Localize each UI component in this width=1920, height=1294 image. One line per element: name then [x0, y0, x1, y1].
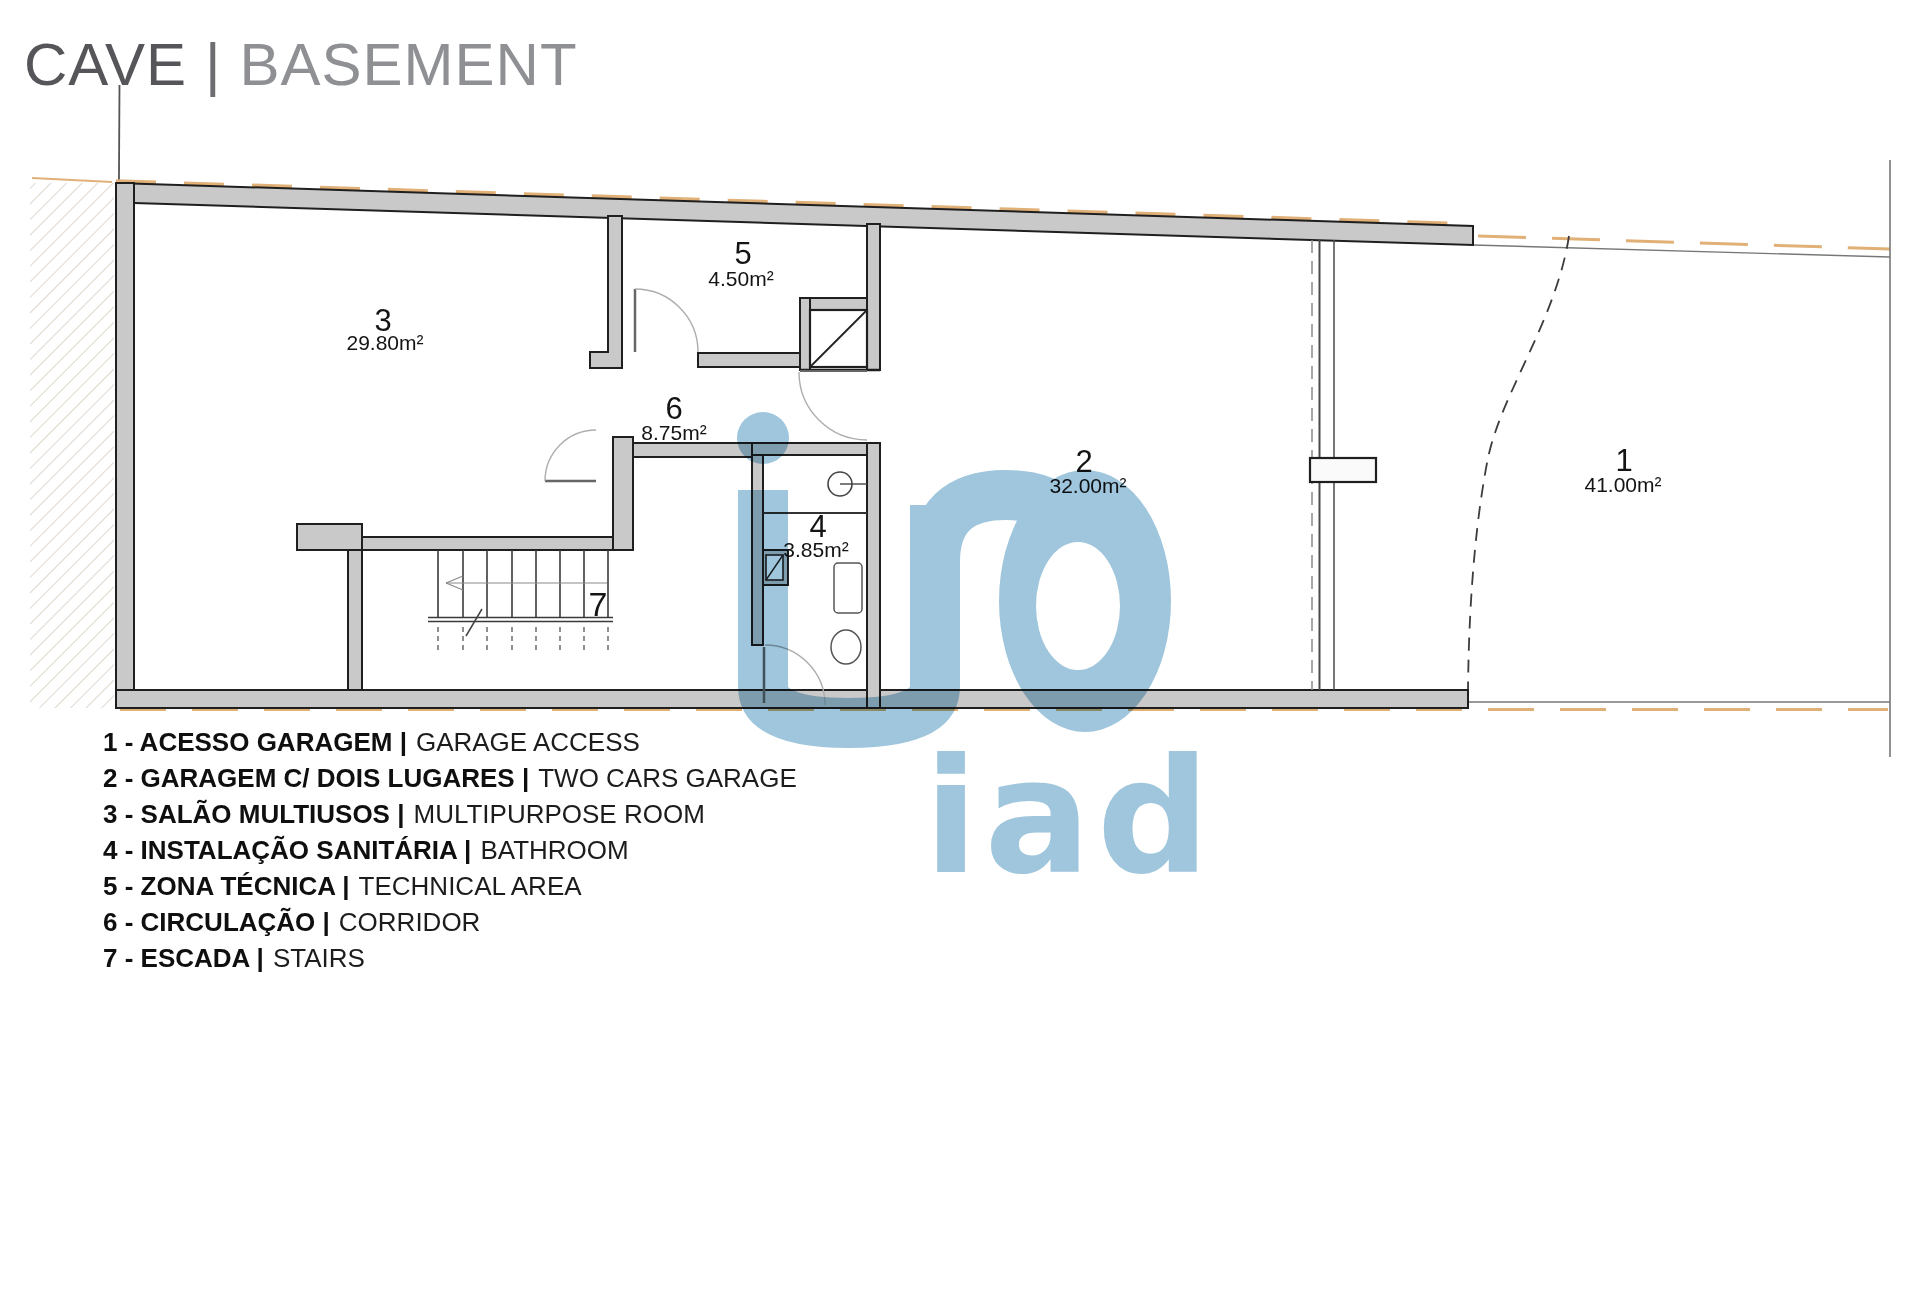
- garage-door: [1310, 240, 1376, 690]
- room1-area: 41.00m²: [1584, 473, 1661, 496]
- room4-area: 3.85m²: [783, 538, 848, 561]
- legend: 1 - ACESSO GARAGEM |GARAGE ACCESS 2 - GA…: [103, 724, 797, 976]
- legend-item-3: 3 - SALÃO MULTIUSOS |MULTIPURPOSE ROOM: [103, 796, 797, 832]
- legend-item-7-pt: 7 - ESCADA |: [103, 943, 264, 973]
- legend-item-1-pt: 1 - ACESSO GARAGEM |: [103, 727, 407, 757]
- legend-item-7-en: STAIRS: [273, 943, 365, 973]
- wall-stair-block: [297, 524, 362, 550]
- legend-item-7: 7 - ESCADA |STAIRS: [103, 940, 797, 976]
- toilet-bowl: [831, 630, 861, 664]
- wall-shaft-left: [800, 298, 810, 370]
- legend-item-3-pt: 3 - SALÃO MULTIUSOS |: [103, 799, 404, 829]
- room3-area: 29.80m²: [346, 331, 423, 354]
- stairs-break-line: [466, 609, 482, 636]
- stairs-direction-arrow: [446, 576, 607, 590]
- driveway-curve: [1468, 236, 1569, 690]
- legend-item-6: 6 - CIRCULAÇÃO |CORRIDOR: [103, 904, 797, 940]
- wall-bathroom-right: [867, 443, 880, 708]
- legend-item-2-en: TWO CARS GARAGE: [538, 763, 797, 793]
- legend-item-4-en: BATHROOM: [480, 835, 628, 865]
- door-garage-arc: [799, 372, 867, 440]
- stairs-hidden-treads: [438, 627, 608, 652]
- boundary-topleft-orange: [32, 178, 112, 182]
- boundary-topright-line: [1473, 245, 1890, 257]
- hatch-band: [30, 183, 114, 708]
- legend-item-6-pt: 6 - CIRCULAÇÃO |: [103, 907, 330, 937]
- wall-left: [116, 183, 134, 708]
- legend-item-1-en: GARAGE ACCESS: [416, 727, 640, 757]
- watermark-text: iad: [924, 725, 1216, 909]
- stairs: [428, 550, 613, 652]
- legend-item-3-en: MULTIPURPOSE ROOM: [413, 799, 704, 829]
- room7-number: 7: [589, 585, 608, 623]
- walls: [116, 183, 1473, 708]
- watermark-logo: iad: [737, 412, 1216, 909]
- legend-item-6-en: CORRIDOR: [339, 907, 481, 937]
- legend-item-4: 4 - INSTALAÇÃO SANITÁRIA |BATHROOM: [103, 832, 797, 868]
- legend-item-2: 2 - GARAGEM C/ DOIS LUGARES |TWO CARS GA…: [103, 760, 797, 796]
- room5-number: 5: [734, 236, 751, 271]
- wall-stair-thin: [362, 537, 613, 550]
- wall-garage-left: [867, 224, 880, 370]
- watermark-bowl-hole: [1036, 542, 1120, 670]
- legend-item-2-pt: 2 - GARAGEM C/ DOIS LUGARES |: [103, 763, 529, 793]
- room5-area: 4.50m²: [708, 267, 773, 290]
- garage-door-motor-box: [1310, 458, 1376, 482]
- door-stairs-arc: [545, 430, 596, 481]
- legend-item-1: 1 - ACESSO GARAGEM |GARAGE ACCESS: [103, 724, 797, 760]
- wall-room5-south: [698, 353, 800, 367]
- wall-top: [116, 183, 1473, 245]
- legend-item-5: 5 - ZONA TÉCNICA |TECHNICAL AREA: [103, 868, 797, 904]
- wall-stairwell-left: [348, 550, 362, 690]
- wall-corridor-horizontal: [633, 443, 752, 457]
- toilet-tank: [834, 563, 862, 613]
- legend-item-4-pt: 4 - INSTALAÇÃO SANITÁRIA |: [103, 835, 471, 865]
- watermark-i-dot: [737, 412, 789, 464]
- wall-corridor-vertical: [613, 437, 633, 550]
- door-room5-arc: [635, 289, 698, 352]
- legend-item-5-pt: 5 - ZONA TÉCNICA |: [103, 871, 350, 901]
- room6-area: 8.75m²: [641, 421, 706, 444]
- wall-room3-right: [590, 216, 622, 368]
- floor-plan: 3 29.80m² 5 4.50m² 6 8.75m² 4 3.85m² 2 3…: [0, 0, 1920, 1294]
- legend-item-5-en: TECHNICAL AREA: [359, 871, 582, 901]
- floorplan-page: CAVE|BASEMENT: [0, 0, 1920, 1294]
